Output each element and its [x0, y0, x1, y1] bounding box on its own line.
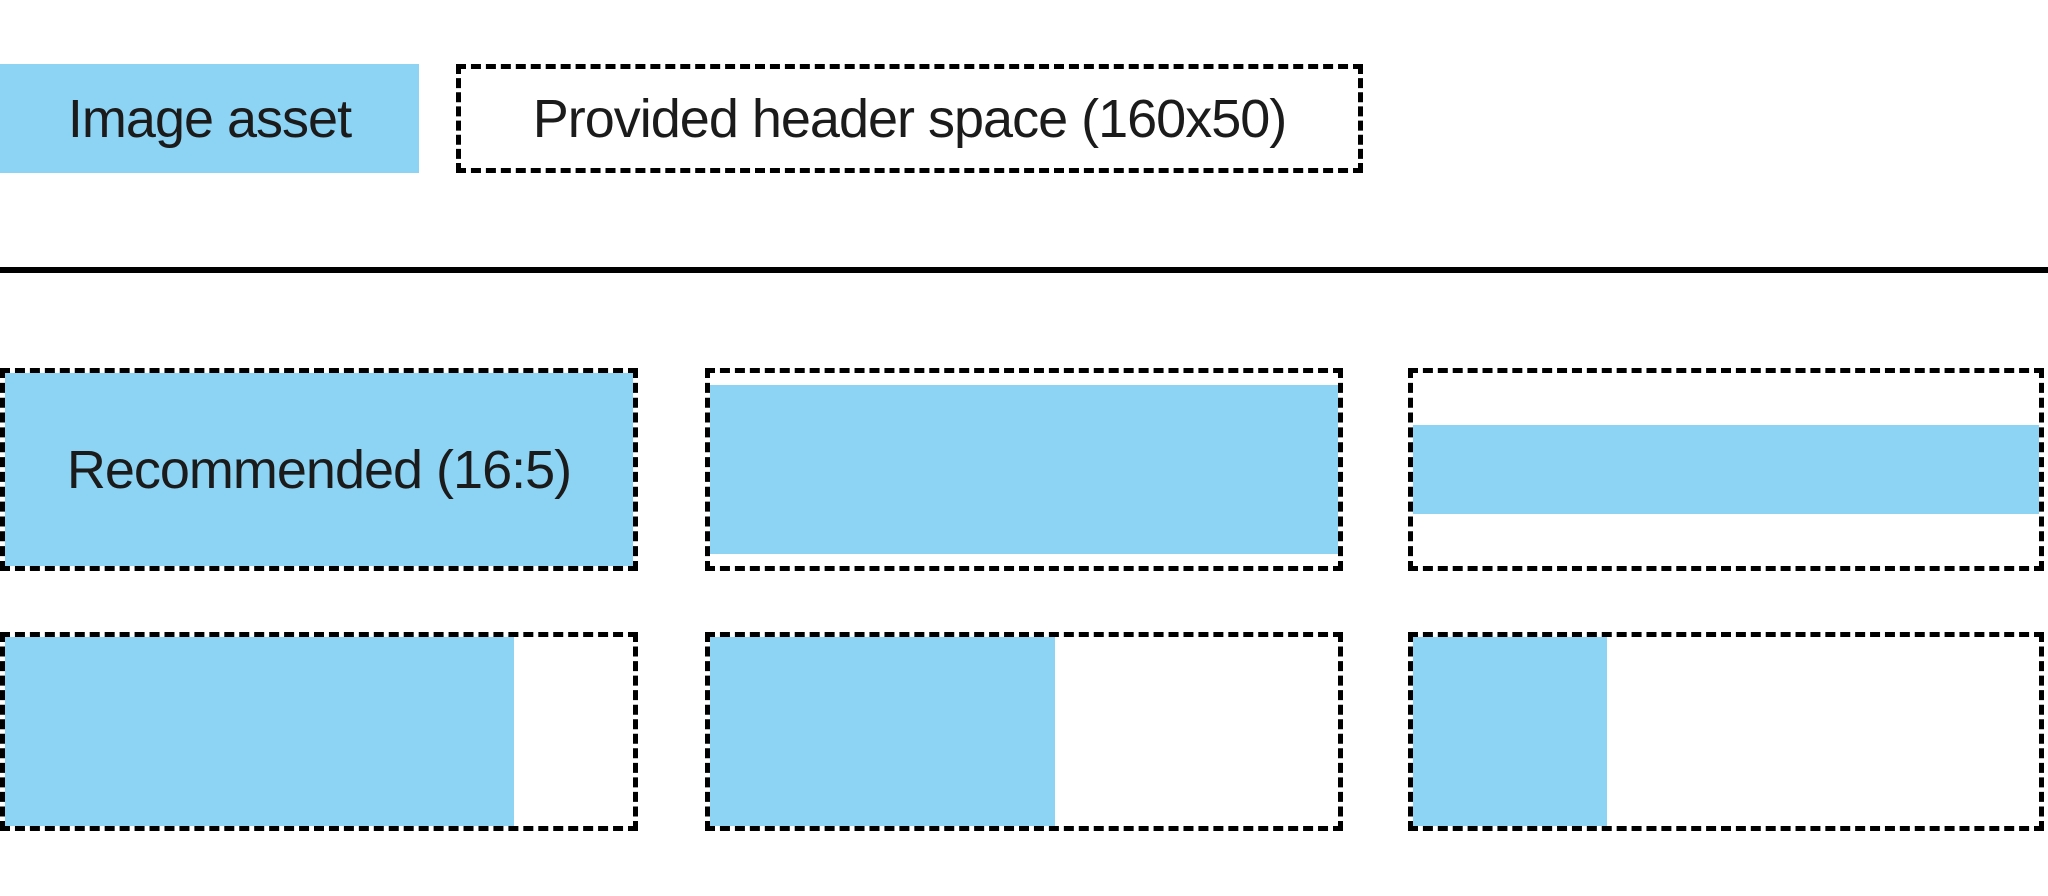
example-box-narrower-pillarboxed [0, 632, 638, 831]
example-box-narrowest-pillarboxed [1408, 632, 2044, 831]
example-box-recommended-16-5: Recommended (16:5) [0, 368, 638, 571]
example-box-much-wider-letterboxed [1408, 368, 2044, 571]
recommended-ratio-label: Recommended (16:5) [67, 443, 571, 497]
asset-fill-narrower-pillarboxed [5, 637, 514, 826]
asset-fill-much-wider-letterboxed [1413, 425, 2039, 514]
legend-header-space-box: Provided header space (160x50) [456, 64, 1363, 173]
asset-fill-much-narrower-pillarboxed [710, 637, 1055, 826]
asset-fill-narrowest-pillarboxed [1413, 637, 1607, 826]
asset-fill-wider-letterboxed [710, 385, 1338, 555]
asset-fill-recommended: Recommended (16:5) [5, 373, 633, 566]
legend-image-asset-label: Image asset [68, 92, 351, 146]
example-box-wider-letterboxed [705, 368, 1343, 571]
legend-image-asset-swatch: Image asset [0, 64, 419, 173]
example-box-much-narrower-pillarboxed [705, 632, 1343, 831]
legend-header-space-label: Provided header space (160x50) [533, 92, 1287, 146]
section-divider [0, 267, 2048, 273]
header-asset-sizing-diagram: Image asset Provided header space (160x5… [0, 0, 2048, 896]
